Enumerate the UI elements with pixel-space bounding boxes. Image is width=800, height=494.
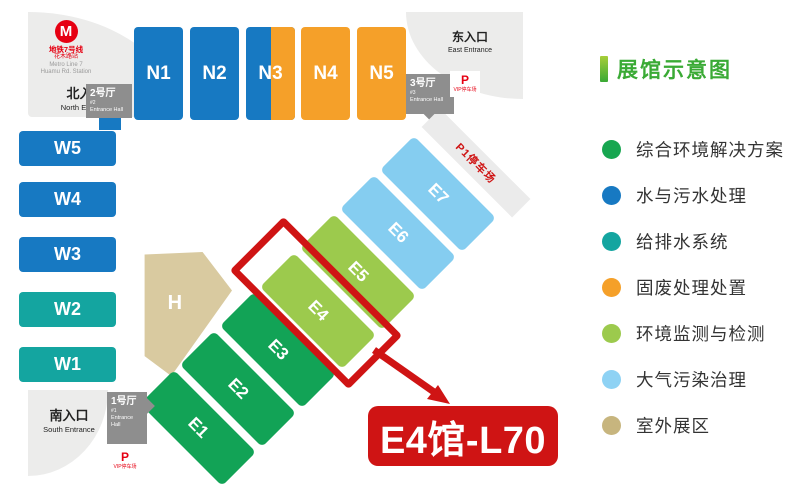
- hall-w4: W4: [19, 182, 116, 217]
- hall-w4-label: W4: [54, 189, 81, 210]
- hall-n2-label: N2: [202, 63, 226, 85]
- p1-parking-label: P1停车场: [452, 139, 500, 187]
- metro-logo-icon: M: [55, 20, 78, 43]
- legend-item-label: 固废处理处置: [636, 275, 747, 300]
- arrowhead-icon: [427, 385, 450, 404]
- legend-item: 综合环境解决方案: [602, 140, 784, 159]
- vip-parking-south-label: VIP停车场: [105, 464, 145, 470]
- hall-e1-label: E1: [184, 414, 213, 443]
- hall-n5: N5: [357, 27, 406, 120]
- south-entrance-zh: 南入口: [30, 408, 108, 425]
- legend: 综合环境解决方案 水与污水处理 给排水系统 固废处理处置 环境监测与检测 大气污…: [602, 140, 784, 462]
- parking-icon: P: [105, 450, 145, 464]
- hall-e3-label: E3: [264, 336, 293, 365]
- hall-n1-label: N1: [146, 63, 170, 85]
- hall-e7-label: E7: [424, 180, 453, 209]
- hall-h-label: H: [168, 292, 182, 315]
- entrance-hall-3: 3号厅 #3 Entrance Hall: [406, 74, 454, 114]
- hall-w2: W2: [19, 292, 116, 327]
- hall-w3-label: W3: [54, 244, 81, 265]
- hall-n1: N1: [134, 27, 183, 120]
- metro-station-info: M 地铁7号线 花木路站 Metro Line 7 Huamu Rd. Stat…: [34, 20, 98, 77]
- hall-n3-label: N3: [258, 63, 282, 85]
- hall-w2-label: W2: [54, 299, 81, 320]
- entrance-hall-3-zh: 3号厅: [410, 77, 450, 90]
- e4-callout-label: E4馆-L70: [368, 406, 558, 466]
- entrance-hall-3-en: Entrance Hall: [410, 97, 450, 104]
- entrance-hall-1: 1号厅 #1 Entrance Hall: [107, 392, 147, 444]
- hall-w5-label: W5: [54, 138, 81, 159]
- hall-n4-label: N4: [313, 63, 337, 85]
- legend-dot-icon: [602, 186, 621, 205]
- legend-item-label: 给排水系统: [636, 229, 729, 254]
- entrance-hall-2-en: Entrance Hall: [90, 107, 128, 114]
- legend-item: 水与污水处理: [602, 186, 784, 205]
- legend-item-label: 环境监测与检测: [636, 321, 766, 346]
- legend-title: 展馆示意图: [600, 54, 732, 84]
- metro-line-zh: 地铁7号线: [34, 45, 98, 54]
- hall-e6-label: E6: [384, 219, 413, 248]
- hall-n4: N4: [301, 27, 350, 120]
- legend-item-label: 综合环境解决方案: [636, 137, 784, 162]
- legend-item-label: 室外展区: [636, 413, 710, 438]
- hall-w1-label: W1: [54, 354, 81, 375]
- vip-parking-east: P VIP停车场: [450, 71, 480, 97]
- metro-line-en: Metro Line 7: [34, 62, 98, 70]
- entrance-hall-2-zh: 2号厅: [90, 87, 128, 100]
- hall-n3: N3: [246, 27, 295, 120]
- legend-title-bar-icon: [600, 56, 608, 82]
- east-entrance-label: 东入口 East Entrance: [424, 30, 516, 55]
- exhibition-map-page: M 地铁7号线 花木路站 Metro Line 7 Huamu Rd. Stat…: [0, 0, 800, 494]
- entrance-hall-1-en: Entrance Hall: [111, 415, 143, 429]
- legend-item-label: 水与污水处理: [636, 183, 747, 208]
- hall-w5: W5: [19, 131, 116, 166]
- east-entrance-en: East Entrance: [424, 46, 516, 55]
- legend-item-label: 大气污染治理: [636, 367, 747, 392]
- entrance-hall-2: 2号厅 #2 Entrance Hall: [86, 84, 132, 118]
- hall-w1: W1: [19, 347, 116, 382]
- legend-dot-icon: [602, 140, 621, 159]
- legend-title-text: 展馆示意图: [617, 54, 732, 84]
- legend-dot-icon: [602, 232, 621, 251]
- arrow-shaft: [374, 350, 434, 392]
- hall-n5-label: N5: [369, 63, 393, 85]
- legend-item: 固废处理处置: [602, 278, 784, 297]
- legend-dot-icon: [602, 278, 621, 297]
- hall-e2-label: E2: [224, 375, 253, 404]
- east-entrance-zh: 东入口: [424, 30, 516, 46]
- metro-station-en: Huamu Rd. Station: [34, 69, 98, 77]
- hall-n2: N2: [190, 27, 239, 120]
- legend-item: 大气污染治理: [602, 370, 784, 389]
- south-entrance-label: 南入口 South Entrance: [30, 408, 108, 435]
- legend-item: 环境监测与检测: [602, 324, 784, 343]
- legend-item: 室外展区: [602, 416, 784, 435]
- legend-dot-icon: [602, 324, 621, 343]
- legend-dot-icon: [602, 370, 621, 389]
- parking-icon: P: [450, 73, 480, 87]
- vip-parking-east-label: VIP停车场: [450, 87, 480, 93]
- entrance-hall-1-zh: 1号厅: [111, 395, 143, 408]
- south-entrance-en: South Entrance: [30, 425, 108, 435]
- hall-w3: W3: [19, 237, 116, 272]
- metro-station-zh: 花木路站: [34, 54, 98, 62]
- legend-dot-icon: [602, 416, 621, 435]
- legend-item: 给排水系统: [602, 232, 784, 251]
- vip-parking-south: P VIP停车场: [105, 446, 145, 478]
